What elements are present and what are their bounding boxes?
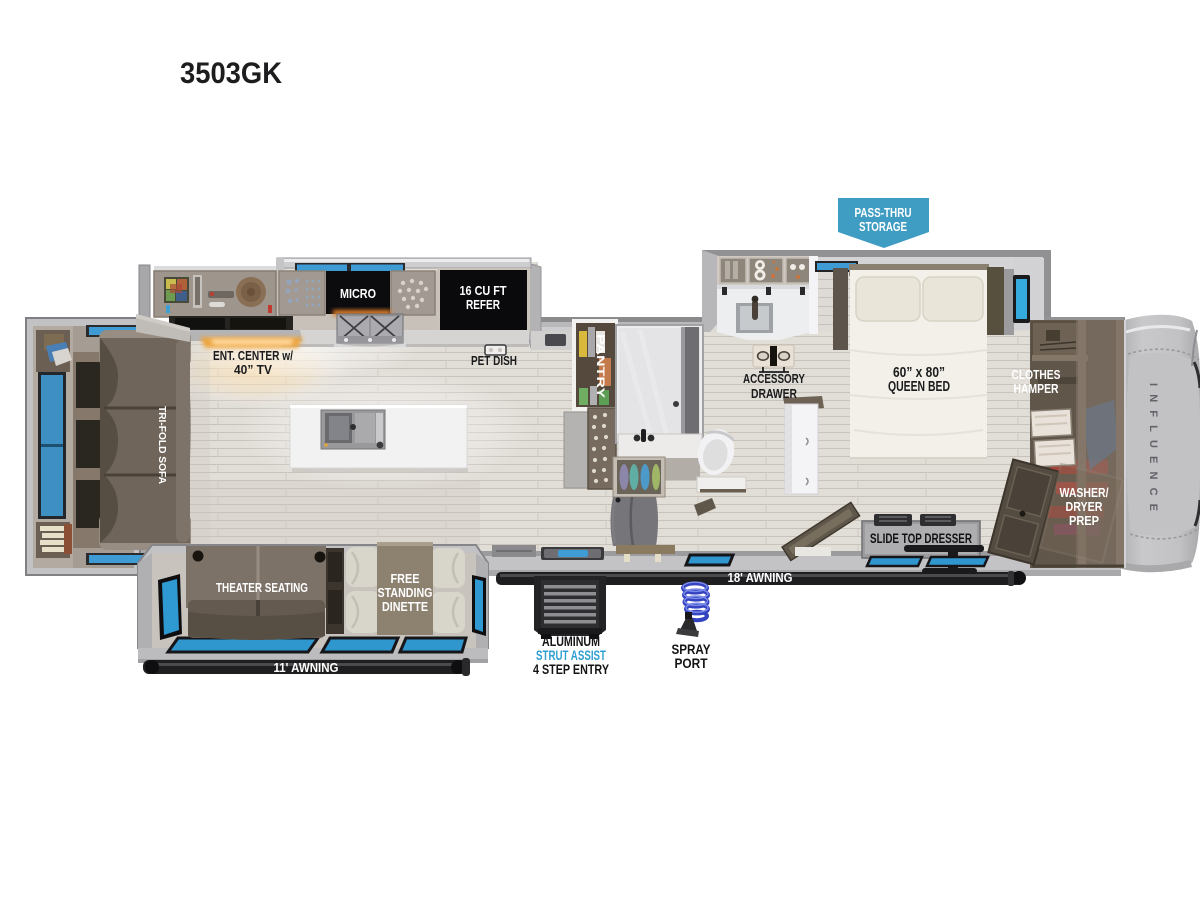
svg-text:MICRO: MICRO xyxy=(340,286,376,301)
svg-text:4 STEP ENTRY: 4 STEP ENTRY xyxy=(533,661,610,677)
svg-text:PANTRY: PANTRY xyxy=(594,334,606,399)
svg-text:STANDING: STANDING xyxy=(378,585,433,600)
svg-text:DRYER: DRYER xyxy=(1066,500,1103,514)
svg-text:PET DISH: PET DISH xyxy=(471,353,517,368)
svg-text:PREP: PREP xyxy=(1069,514,1099,528)
svg-text:PORT: PORT xyxy=(675,655,708,671)
svg-text:HAMPER: HAMPER xyxy=(1014,382,1059,396)
svg-text:ACCESSORY: ACCESSORY xyxy=(743,371,805,386)
svg-text:40” TV: 40” TV xyxy=(234,362,272,377)
svg-text:3503GK: 3503GK xyxy=(180,57,282,90)
svg-text:11' AWNING: 11' AWNING xyxy=(274,660,339,675)
svg-text:DINETTE: DINETTE xyxy=(382,599,428,614)
svg-text:18' AWNING: 18' AWNING xyxy=(728,570,793,585)
svg-text:DRAWER: DRAWER xyxy=(751,386,797,401)
svg-text:16 CU FT: 16 CU FT xyxy=(460,283,507,298)
svg-text:FREE: FREE xyxy=(391,571,420,586)
svg-text:TRI-FOLD SOFA: TRI-FOLD SOFA xyxy=(156,406,168,484)
svg-text:ENT. CENTER w/: ENT. CENTER w/ xyxy=(213,348,293,363)
svg-text:THEATER SEATING: THEATER SEATING xyxy=(216,580,308,595)
svg-text:WASHER/: WASHER/ xyxy=(1060,486,1109,500)
svg-text:CLOTHES: CLOTHES xyxy=(1012,368,1061,382)
svg-text:PASS-THRU: PASS-THRU xyxy=(855,205,912,220)
svg-text:QUEEN BED: QUEEN BED xyxy=(888,379,950,395)
svg-text:STORAGE: STORAGE xyxy=(859,219,907,234)
svg-text:SLIDE TOP DRESSER: SLIDE TOP DRESSER xyxy=(870,531,972,546)
svg-text:REFER: REFER xyxy=(466,297,500,312)
